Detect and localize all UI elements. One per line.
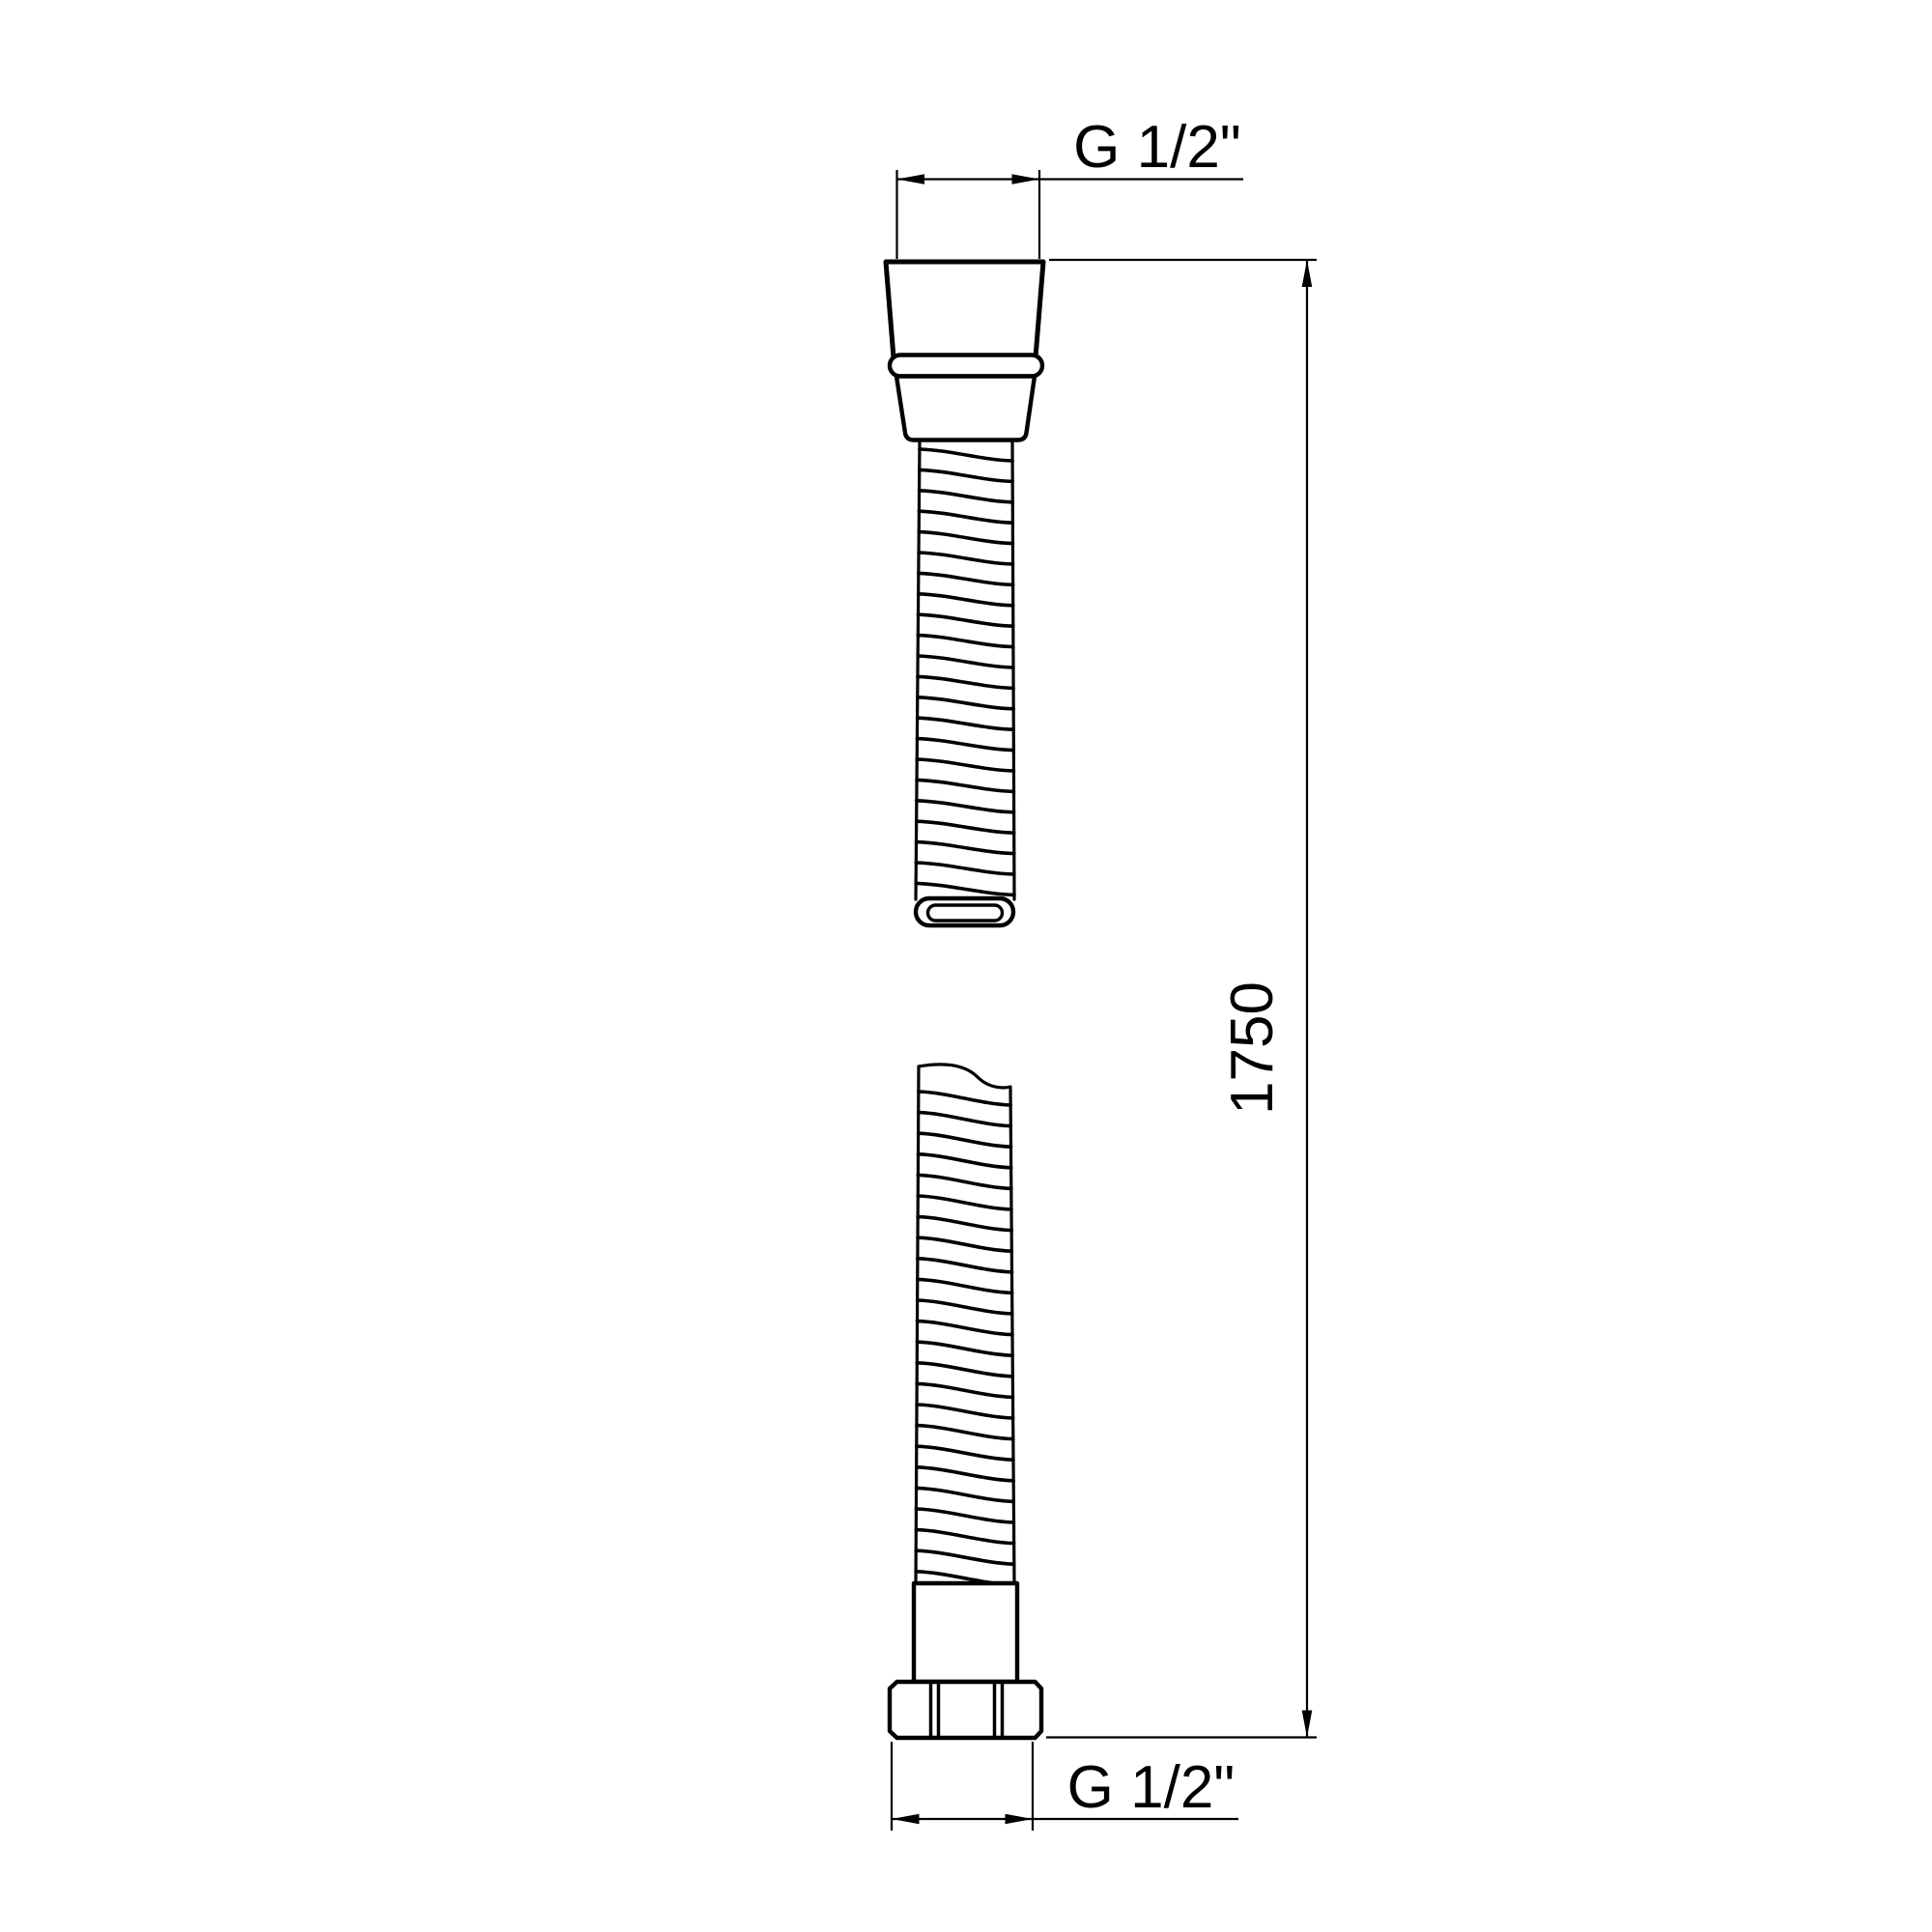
length-arrow-up-icon bbox=[1302, 260, 1313, 287]
hose-coil-line bbox=[918, 1259, 1012, 1272]
top-thread-dimension: G 1/2" bbox=[897, 114, 1244, 259]
hose-coil-line bbox=[917, 1467, 1013, 1481]
bottom-arrow-left-icon bbox=[892, 1814, 920, 1825]
hose-coil-line bbox=[918, 1217, 1011, 1231]
label-top-thread: G 1/2" bbox=[1073, 114, 1241, 181]
hose-upper-coils bbox=[916, 449, 1014, 895]
hose-lower-segment bbox=[916, 1065, 1014, 1585]
hose-coil-line bbox=[916, 1550, 1014, 1564]
hose-coil-line bbox=[916, 883, 1014, 895]
bottom-arrow-right-icon bbox=[1006, 1814, 1034, 1825]
bottom-thread-dimension: G 1/2" bbox=[892, 1742, 1238, 1831]
hose-coil-line bbox=[917, 739, 1013, 751]
hose-coil-line bbox=[918, 718, 1014, 729]
hose-coil-line bbox=[918, 1175, 1010, 1188]
hose-coil-line bbox=[916, 863, 1014, 874]
top-connector-lower-body bbox=[896, 377, 1035, 440]
hose-coil-line bbox=[919, 573, 1013, 584]
hose-upper-edge-left bbox=[916, 442, 920, 899]
hose-coil-line bbox=[917, 780, 1013, 791]
hose-coil-line bbox=[917, 1426, 1013, 1439]
hose-coil-line bbox=[917, 1383, 1012, 1397]
hose-coil-line bbox=[918, 1279, 1012, 1293]
hose-coil-line bbox=[918, 1196, 1011, 1209]
hose-coil-line bbox=[919, 1113, 1011, 1126]
label-bottom-thread: G 1/2" bbox=[1067, 1754, 1236, 1821]
hose-coil-line bbox=[917, 1363, 1012, 1377]
hose-coil-line bbox=[919, 553, 1012, 564]
hose-coil-line bbox=[917, 1488, 1014, 1501]
hose-lower-edge-right bbox=[1010, 1088, 1014, 1583]
hose-coil-line bbox=[919, 1092, 1010, 1105]
hose-coil-line bbox=[918, 1154, 1010, 1168]
hose-coil-line bbox=[918, 676, 1013, 688]
hose-coil-line bbox=[916, 1509, 1013, 1522]
hose-coil-line bbox=[920, 491, 1013, 502]
label-length: 1750 bbox=[1219, 981, 1286, 1115]
top-connector-oring bbox=[890, 355, 1042, 377]
hose-coil-line bbox=[917, 842, 1014, 854]
length-dimension: 1750 bbox=[1046, 260, 1317, 1738]
hex-nut-body bbox=[890, 1682, 1041, 1738]
hose-coil-line bbox=[920, 469, 1012, 481]
hose-coil-line bbox=[917, 821, 1014, 833]
hose-lower-edge-left bbox=[916, 1066, 919, 1583]
hose-coil-line bbox=[918, 697, 1013, 709]
hose-coil-line bbox=[919, 594, 1013, 606]
hose-coil-line bbox=[920, 449, 1012, 461]
hose-lower-break-top bbox=[919, 1065, 1010, 1088]
hose-coil-line bbox=[918, 636, 1013, 647]
hose-coil-line bbox=[917, 801, 1014, 812]
technical-drawing-canvas: G 1/2" 1750 bbox=[0, 0, 1932, 1932]
hose-upper-segment bbox=[916, 442, 1014, 925]
hose-coil-line bbox=[918, 1321, 1012, 1335]
length-arrow-down-icon bbox=[1302, 1711, 1313, 1738]
hose-coil-line bbox=[919, 1133, 1011, 1147]
hose-coil-line bbox=[918, 656, 1013, 668]
bottom-ferrule bbox=[914, 1583, 1017, 1682]
hose-coil-line bbox=[918, 1300, 1012, 1314]
hose-upper-edge-right bbox=[1012, 442, 1014, 899]
top-arrow-left-icon bbox=[897, 174, 925, 185]
top-connector bbox=[886, 262, 1043, 440]
hose-coil-line bbox=[919, 532, 1012, 544]
hose-coil-line bbox=[917, 1342, 1012, 1355]
hose-coil-line bbox=[917, 1405, 1013, 1418]
hose-coil-line bbox=[917, 759, 1013, 771]
top-connector-upper-body bbox=[886, 262, 1043, 357]
hose-coil-line bbox=[917, 1446, 1013, 1460]
hose-coil-line bbox=[919, 511, 1012, 523]
hose-coil-line bbox=[916, 1530, 1013, 1544]
bottom-connector bbox=[890, 1583, 1041, 1738]
hose-coil-line bbox=[918, 1237, 1011, 1251]
hose-coil-line bbox=[918, 614, 1012, 626]
top-arrow-right-icon bbox=[1012, 174, 1040, 185]
hose-lower-coils bbox=[916, 1092, 1014, 1585]
